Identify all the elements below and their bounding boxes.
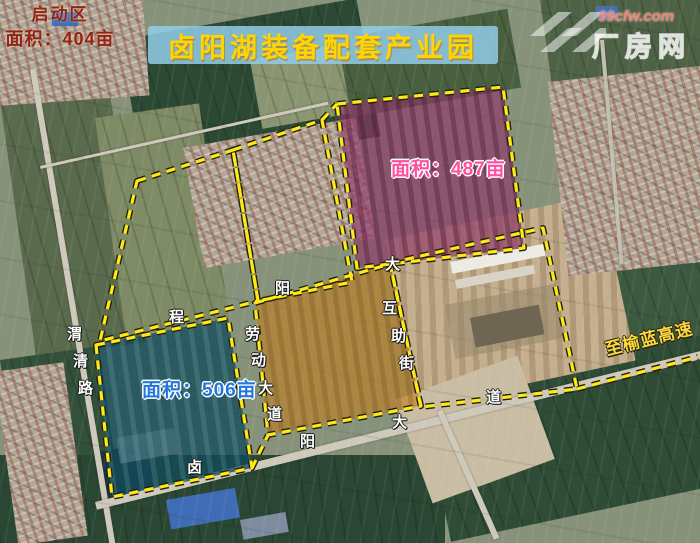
boundary-northwest-parcel-1 [100, 150, 258, 341]
boundary-overlay [0, 0, 700, 543]
watermark: 99cfw.com 厂房网 [528, 2, 700, 64]
watermark-brand: 厂房网 [592, 25, 691, 64]
boundary-connector [252, 435, 268, 468]
parcel-north-fill [337, 87, 524, 268]
boundary-connector [322, 104, 337, 120]
watermark-site: 99cfw.com [598, 8, 674, 25]
satellite-map: 渭 清 路 程 阳 劳 动 大 道 大 互 助 街 卤 阳 大 道 至榆蓝高速 [0, 0, 700, 543]
park-title-banner: 卤阳湖装备配套产业园 [148, 26, 498, 64]
boundary-east-extension [577, 357, 698, 389]
park-title: 卤阳湖装备配套产业园 [168, 26, 478, 65]
parcel-west-fill [96, 318, 252, 497]
